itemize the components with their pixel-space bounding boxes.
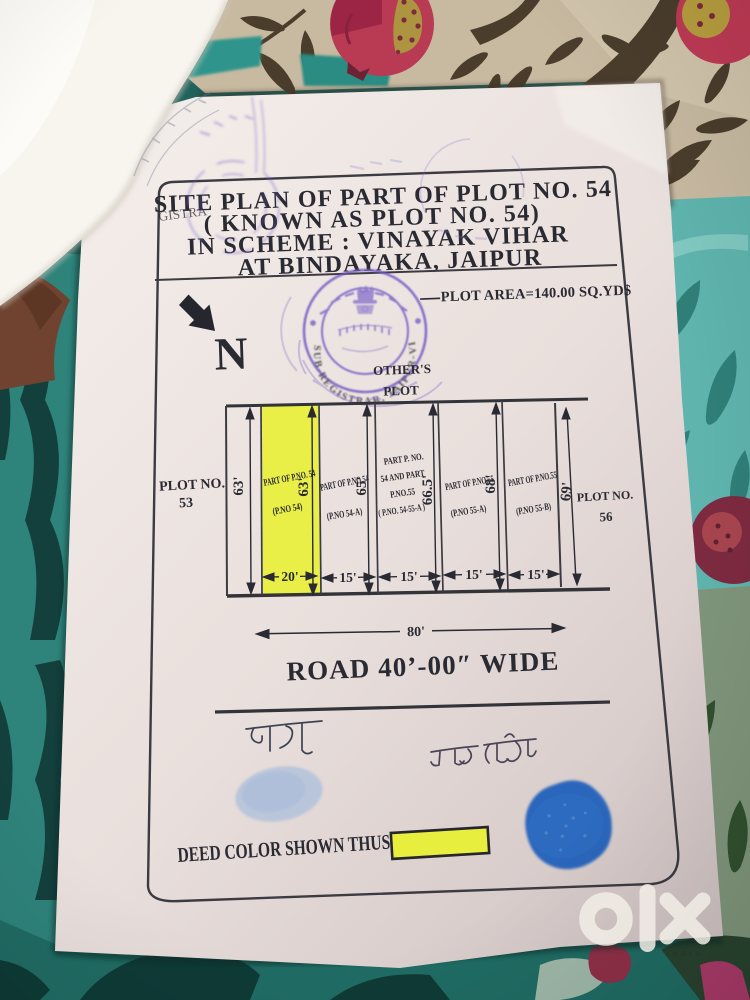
- svg-text:INDIA: INDIA: [666, 950, 703, 958]
